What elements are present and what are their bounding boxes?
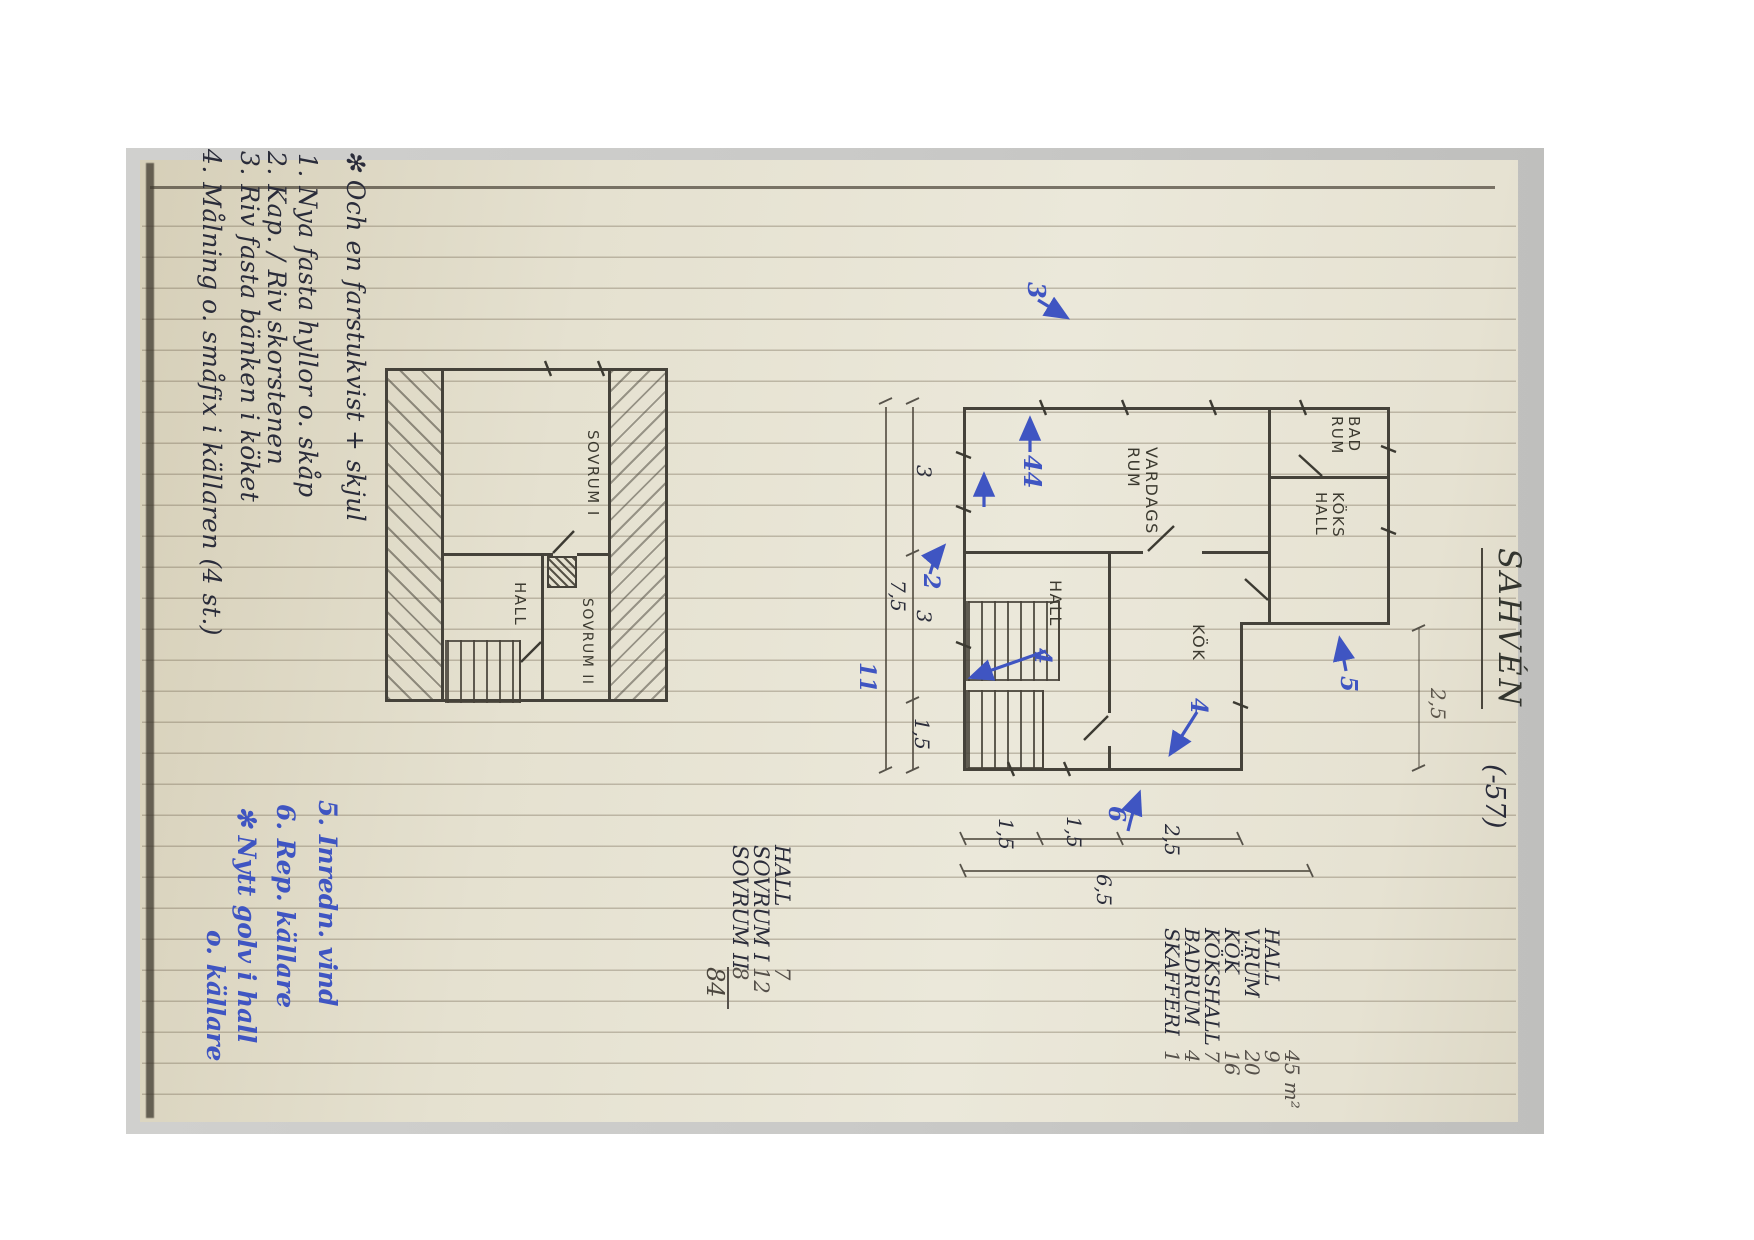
wall xyxy=(1108,746,1111,770)
blue-edit-5: 5 xyxy=(1337,676,1360,692)
note-item-2: 2. Kap. / Riv skorstenen xyxy=(264,151,289,465)
dim-label: 1,5 xyxy=(1064,816,1084,848)
schedule-row: SKAFFERI 1 xyxy=(1162,928,1182,1109)
room-label-hall: HALL xyxy=(1047,580,1063,627)
note-item-1: 1. Nya fasta hyllor o. skåp xyxy=(295,153,320,498)
wall xyxy=(1202,551,1271,554)
wall xyxy=(963,407,1390,410)
wall xyxy=(541,553,544,702)
wall xyxy=(665,368,668,702)
dim-label: 2,5 xyxy=(1162,824,1182,856)
wall xyxy=(1268,407,1271,625)
wall xyxy=(1240,622,1390,625)
schedule-row: SOVRUM II 8 xyxy=(729,845,750,1009)
schedule-row: HALL 9 xyxy=(1262,928,1282,1109)
blue-edit-3: 3 xyxy=(1024,282,1048,299)
page-title: SAHVÉN xyxy=(1481,548,1524,709)
sloped-ceiling-hatch xyxy=(388,371,441,699)
schedule-row: HALL 7 xyxy=(771,845,792,1009)
room-label-hall-upper: HALL xyxy=(512,582,527,626)
wall xyxy=(963,551,1143,554)
schedule-ground-floor: 45 m² HALL 9 V.RUM 20 KÖK 16 KÖKSHALL 7 … xyxy=(1162,928,1302,1109)
wall xyxy=(385,699,668,702)
dim-label: 1,5 xyxy=(996,818,1016,850)
note-item-4: 4. Målning o. småfix i källaren (4 st.) xyxy=(199,149,224,636)
wall xyxy=(1108,551,1111,713)
dimension-line xyxy=(912,407,914,770)
schedule-row: KÖKSHALL 7 xyxy=(1202,928,1222,1109)
note-item-star: ✻ Och en farstukvist + skjul xyxy=(343,150,368,522)
note-item-3: 3. Riv fasta bänken i köket xyxy=(237,151,262,502)
dim-label: 3 xyxy=(914,465,934,478)
blue-edit-6: 6 xyxy=(1105,806,1128,822)
wall xyxy=(1387,407,1390,625)
wall xyxy=(1240,622,1243,771)
note-item-star-blue: ✻ Nytt golv i hall xyxy=(234,806,259,1043)
dimension-line xyxy=(1418,628,1420,768)
blue-edit-4-hall: 4 xyxy=(1031,648,1054,664)
room-label-kokshall: KÖKS HALL xyxy=(1312,492,1347,538)
wall xyxy=(577,553,611,556)
dim-label: 1,5 xyxy=(912,718,932,750)
page-left-edge xyxy=(146,163,154,1118)
room-label-vardagsrum: VARDAGS RUM xyxy=(1123,447,1160,535)
dim-label: 7,5 xyxy=(888,580,908,612)
blue-edit-44: 44 xyxy=(1020,455,1044,488)
schedule-row: V.RUM 20 xyxy=(1242,928,1262,1109)
note-item-5: 5. Inredn. vind xyxy=(315,800,340,1007)
schedule-row: BADRUM 4 xyxy=(1182,928,1202,1109)
room-label-sovrum1: SOVRUM I xyxy=(585,430,600,517)
staircase xyxy=(445,640,521,703)
dim-label: 6,5 xyxy=(1094,874,1114,906)
note-item-continuation: o. källare xyxy=(203,930,228,1061)
page-title-year: (-57) xyxy=(1481,764,1508,829)
staircase-down xyxy=(966,690,1044,769)
wall xyxy=(1268,476,1390,479)
sloped-ceiling-hatch xyxy=(611,371,665,699)
blue-edit-2: 2 xyxy=(920,574,942,589)
schedule-row: SOVRUM I 12 xyxy=(750,845,771,1009)
notebook-photo-scan: ✻ Och en farstukvist + skjul 1. Nya fast… xyxy=(0,0,1754,1240)
dim-label: 3 xyxy=(914,610,934,623)
dimension-line xyxy=(963,870,1310,872)
schedule-row: KÖK 16 xyxy=(1222,928,1242,1109)
schedule-upper-floor: HALL 7 SOVRUM I 12 SOVRUM II 8 84 xyxy=(703,845,792,1009)
schedule-header: 45 m² xyxy=(1282,928,1302,1109)
dim-label-pencil: 2,5 xyxy=(1428,688,1448,720)
chimney xyxy=(547,556,577,588)
wall xyxy=(441,368,444,702)
note-item-6: 6. Rep. källare xyxy=(273,804,298,1008)
schedule-total: 84 xyxy=(703,967,729,1009)
blue-edit-11: 11 xyxy=(856,662,878,693)
wall xyxy=(441,553,553,556)
room-label-kok: KÖK xyxy=(1190,624,1206,661)
room-label-badrum: BAD RUM xyxy=(1328,416,1363,455)
room-label-sovrum2: SOVRUM II xyxy=(580,598,594,686)
blue-edit-4-kok: 4 xyxy=(1187,698,1210,714)
